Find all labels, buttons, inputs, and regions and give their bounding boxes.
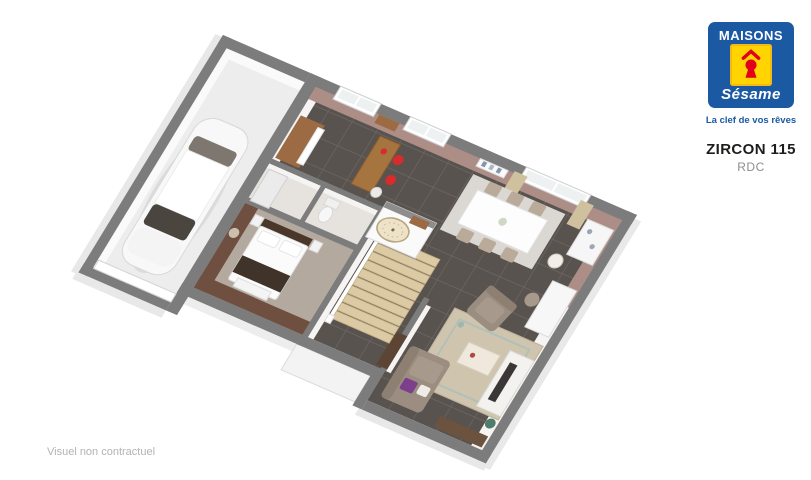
keyhole-badge (730, 44, 772, 86)
keyhole-icon (734, 48, 768, 82)
logo-name-script: Sésame (721, 86, 781, 103)
roof-icon (743, 51, 758, 58)
floor-level: RDC (695, 160, 807, 174)
logo-name-top: MAISONS (719, 28, 783, 43)
model-name: ZIRCON 115 (695, 141, 807, 158)
brand-block: MAISONS Sésame La clef de vos rêves ZIRC… (695, 22, 807, 174)
floorplan-3d (0, 0, 811, 480)
brand-tagline: La clef de vos rêves (695, 115, 807, 126)
disclaimer-text: Visuel non contractuel (47, 446, 155, 458)
maisons-sesame-logo: MAISONS Sésame (708, 22, 794, 108)
